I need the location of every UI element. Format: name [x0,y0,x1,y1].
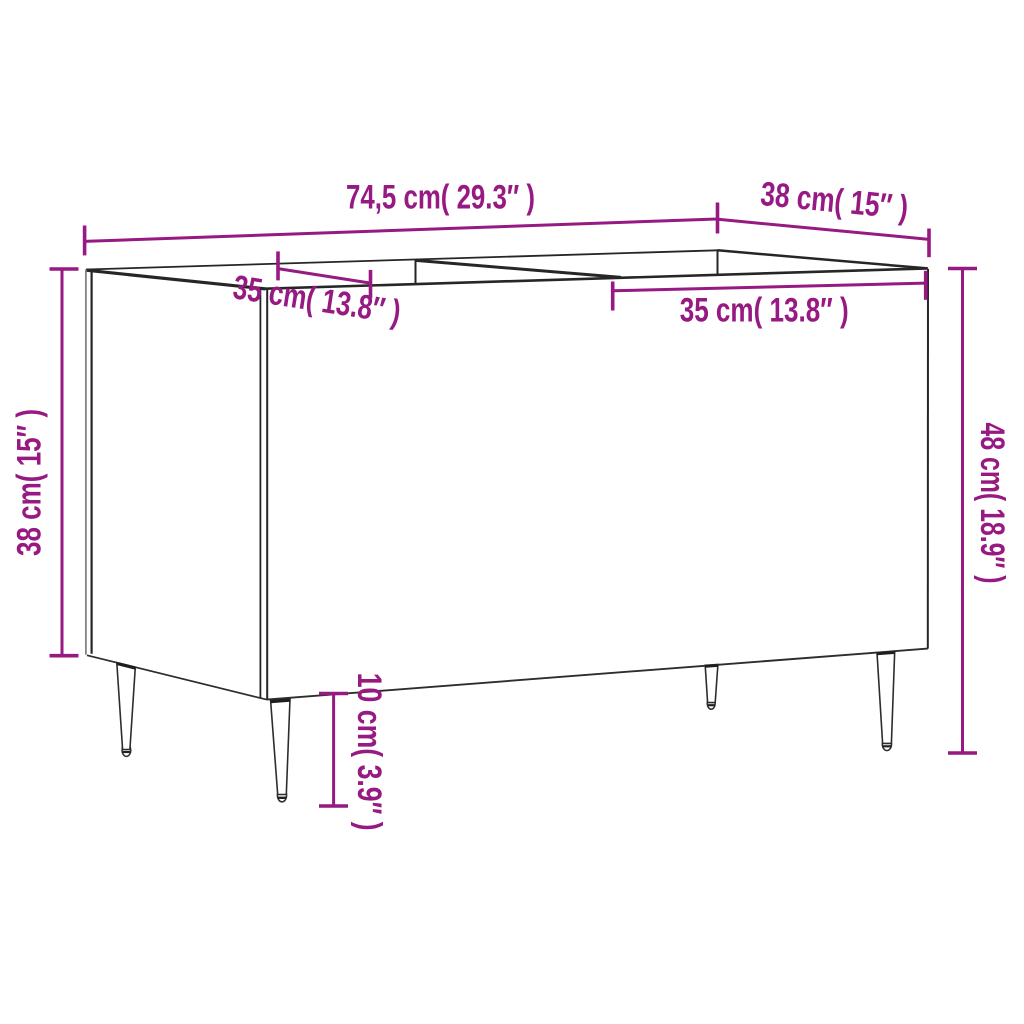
svg-text:35 cm( 13.8″ ): 35 cm( 13.8″ ) [680,292,849,330]
svg-text:74,5 cm( 29.3″ ): 74,5 cm( 29.3″ ) [346,179,535,217]
svg-text:48 cm( 18.9″ ): 48 cm( 18.9″ ) [973,423,1011,584]
svg-text:38 cm( 15″ ): 38 cm( 15″ ) [11,409,49,556]
svg-text:10 cm( 3.9″ ): 10 cm( 3.9″ ) [350,673,388,831]
